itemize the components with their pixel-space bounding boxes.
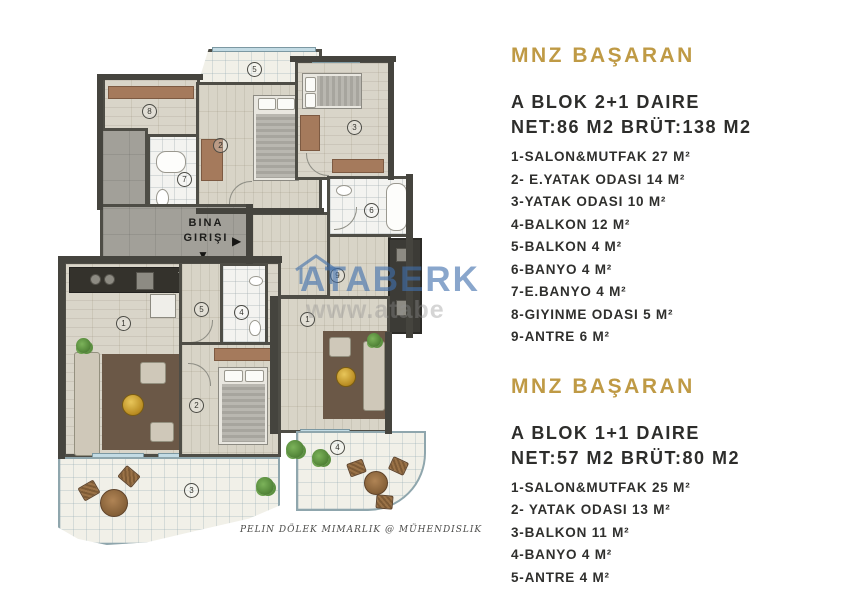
door-arc <box>190 320 213 343</box>
room-label-banyo-1p1: 4 <box>234 305 249 320</box>
room-label-balkon-top: 5 <box>247 62 262 77</box>
armchair <box>150 422 174 442</box>
brand-heading: MNZ BAŞARAN <box>511 375 846 399</box>
door-arc <box>229 181 252 204</box>
fridge <box>150 294 176 318</box>
room-list-item: 9-ANTRE 6 M² <box>511 326 846 349</box>
room-ebanyo <box>147 134 199 215</box>
wall <box>97 74 103 210</box>
sofa <box>74 352 100 456</box>
sink <box>249 276 263 286</box>
entrance-arrow-right-icon: ▶ <box>232 235 241 247</box>
room-list-item: 4-BALKON 12 M² <box>511 214 846 237</box>
chair <box>375 494 393 509</box>
window <box>212 47 316 52</box>
room-label-salon-1p1: 1 <box>116 316 131 331</box>
unit-area: NET:57 M2 BRÜT:80 M2 <box>511 448 846 469</box>
sofa-cushion <box>329 337 351 357</box>
wall <box>58 256 65 459</box>
sink <box>336 185 352 196</box>
bathtub <box>386 183 407 231</box>
room-label-yatak: 3 <box>347 120 362 135</box>
toilet <box>249 320 261 336</box>
room-list-item: 2- YATAK ODASI 13 M² <box>511 499 846 522</box>
chair <box>117 465 140 488</box>
room-label-balkon-1p1: 3 <box>184 483 199 498</box>
room-list-item: 3-YATAK ODASI 10 M² <box>511 191 846 214</box>
floor-plan: BINA GIRIŞI ▶ ▼ <box>0 0 500 566</box>
floor-plan-page: BINA GIRIŞI ▶ ▼ <box>0 0 850 566</box>
wall <box>385 332 392 434</box>
unit-area: NET:86 M2 BRÜT:138 M2 <box>511 117 846 138</box>
room-label-eyatak: 2 <box>213 138 228 153</box>
spec-panel: MNZ BAŞARAN A BLOK 2+1 DAIRE NET:86 M2 B… <box>511 44 846 589</box>
room-list-2p1: 1-SALON&MUTFAK 27 M² 2- E.YATAK ODASI 14… <box>511 146 846 349</box>
room-bedroom3 <box>295 60 392 180</box>
room-list-item: 6-BANYO 4 M² <box>511 259 846 282</box>
armchair <box>140 362 166 384</box>
shelf <box>108 86 194 99</box>
entrance-label-line2: GIRIŞI <box>182 231 230 245</box>
wardrobe <box>214 348 276 361</box>
room-list-item: 5-BALKON 4 M² <box>511 236 846 259</box>
table <box>100 489 128 517</box>
bathtub <box>156 151 186 173</box>
room-label-balkon-right: 4 <box>330 440 345 455</box>
plant <box>256 477 274 495</box>
spec-section-2p1: MNZ BAŞARAN A BLOK 2+1 DAIRE NET:86 M2 B… <box>511 44 846 349</box>
room-list-1p1: 1-SALON&MUTFAK 25 M² 2- YATAK ODASI 13 M… <box>511 477 846 589</box>
room-list-item: 4-BANYO 4 M² <box>511 544 846 567</box>
room-list-item: 8-GIYINME ODASI 5 M² <box>511 304 846 327</box>
wall <box>97 74 203 80</box>
brand-heading: MNZ BAŞARAN <box>511 44 846 68</box>
room-label-banyo: 6 <box>364 203 379 218</box>
chair <box>346 459 367 478</box>
room-banyo-1p1 <box>220 263 268 345</box>
room-label-giyinme: 8 <box>142 104 157 119</box>
plant <box>76 338 91 353</box>
room-label-yatak-1p1: 2 <box>189 398 204 413</box>
spec-section-1p1: MNZ BAŞARAN A BLOK 1+1 DAIRE NET:57 M2 B… <box>511 375 846 589</box>
kitchen-counter <box>69 267 185 293</box>
coffee-table <box>336 367 356 387</box>
entrance-label-line1: BINA <box>186 216 226 230</box>
common-area <box>100 128 148 210</box>
watermark-brand: ATABERK <box>300 260 480 300</box>
wall <box>388 56 394 180</box>
door-arc <box>188 363 211 386</box>
table <box>364 471 388 495</box>
architect-signature: PELIN DÖLEK MIMARLIK @ MÜHENDISLIK <box>240 525 482 535</box>
plant <box>312 449 329 466</box>
door-arc <box>334 207 357 230</box>
plant <box>367 333 381 347</box>
desk <box>300 115 320 151</box>
room-balcony-right <box>296 431 426 511</box>
watermark-url: www.atabe <box>306 296 445 325</box>
room-list-item: 5-ANTRE 4 M² <box>511 567 846 589</box>
wall <box>290 56 396 62</box>
coffee-table <box>122 394 144 416</box>
room-label-antre-1p1: 5 <box>194 302 209 317</box>
chair <box>77 480 100 502</box>
room-list-item: 3-BALKON 11 M² <box>511 522 846 545</box>
wall <box>270 296 278 434</box>
wall <box>196 208 324 214</box>
door-arc <box>306 153 329 176</box>
unit-title: A BLOK 2+1 DAIRE <box>511 92 846 113</box>
bed <box>253 95 299 181</box>
room-list-item: 1-SALON&MUTFAK 27 M² <box>511 146 846 169</box>
bed <box>302 73 362 109</box>
room-list-item: 1-SALON&MUTFAK 25 M² <box>511 477 846 500</box>
room-list-item: 2- E.YATAK ODASI 14 M² <box>511 169 846 192</box>
room-list-item: 7-E.BANYO 4 M² <box>511 281 846 304</box>
sofa <box>363 341 385 411</box>
chair <box>388 456 409 476</box>
unit-title: A BLOK 1+1 DAIRE <box>511 423 846 444</box>
wardrobe <box>332 159 384 173</box>
room-label-ebanyo: 7 <box>177 172 192 187</box>
bed <box>218 367 268 445</box>
plant <box>286 440 304 458</box>
